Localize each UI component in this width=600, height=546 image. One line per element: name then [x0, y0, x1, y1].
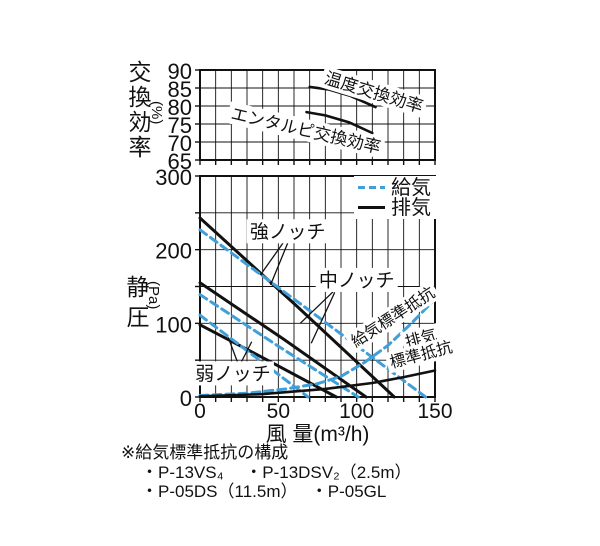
supply-dashed-line-swatch	[358, 186, 385, 189]
annotation-中ノッチ: 中ノッチ	[316, 268, 398, 292]
annotation-エンタルピ交換効率: エンタルピ交換効率	[226, 101, 386, 158]
legend-supply-row: 給気	[358, 178, 437, 197]
y-tick-label: 100	[155, 312, 192, 337]
footnote-line-1: ・P-13VS₄ ・P-13DSV₂（2.5m）	[141, 464, 412, 481]
pressure-y-axis-title: 静圧	[124, 275, 147, 335]
legend-exhaust-row: 排気	[358, 198, 437, 217]
footnote-title: ※給気標準抵抗の構成	[121, 444, 288, 461]
pressure-y-axis-unit: (Pa)	[146, 281, 161, 309]
y-tick-label: 200	[155, 239, 192, 264]
y-tick-label: 0	[180, 386, 192, 411]
annotation-leader-line	[311, 292, 335, 343]
efficiency-chart: 908580757065温度交換効率エンタルピ交換効率	[168, 59, 435, 174]
annotation-text: 中ノッチ	[319, 270, 395, 292]
annotation-text: 強ノッチ	[250, 221, 326, 243]
annotation-text: 弱ノッチ	[195, 364, 271, 385]
footnote-line-2: ・P-05DS（11.5m） ・P-05GL	[141, 483, 386, 500]
legend: 給気 排気	[354, 176, 437, 219]
y-tick-label: 300	[155, 165, 192, 190]
annotation-強ノッチ: 強ノッチ	[247, 219, 329, 243]
legend-supply-label: 給気	[391, 178, 431, 198]
exhaust-solid-line-swatch	[358, 206, 385, 209]
efficiency-y-axis-title: 交換効率	[126, 60, 149, 160]
annotation-leader-line	[263, 243, 283, 272]
annotation-弱ノッチ: 弱ノッチ	[192, 361, 274, 385]
fan-performance-panel: 908580757065温度交換効率エンタルピ交換効率3002001000050…	[0, 0, 600, 546]
efficiency-y-axis-unit: (%)	[149, 101, 164, 124]
legend-exhaust-label: 排気	[391, 198, 431, 218]
